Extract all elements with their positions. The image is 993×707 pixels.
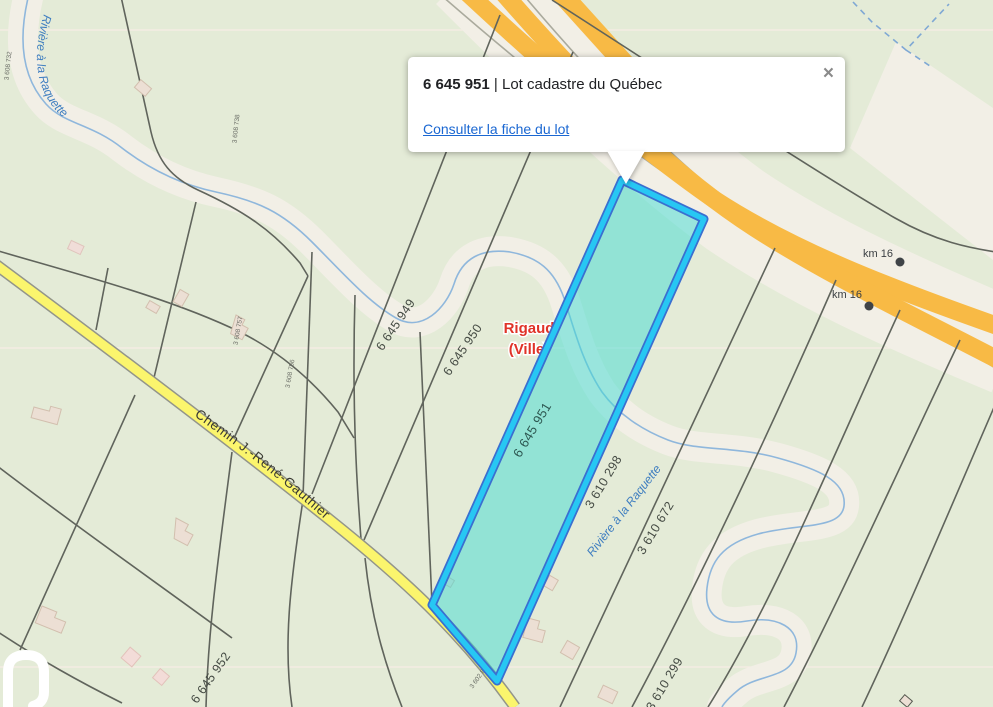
lot-info-popup: 6 645 951 | Lot cadastre du Québec Consu… [408, 57, 845, 152]
popup-title-text: Lot cadastre du Québec [502, 76, 662, 93]
popup-separator: | [494, 76, 498, 93]
map-viewer: Chemin J.-René-Gauthier Rivière à la Raq… [0, 0, 993, 707]
lot-sheet-link[interactable]: Consulter la fiche du lot [423, 121, 569, 137]
km-marker-dot [896, 258, 905, 267]
km-marker-dot [865, 302, 874, 311]
km-marker-label: km 16 [832, 289, 862, 301]
km-marker-label: km 16 [863, 248, 893, 260]
municipality-name: Rigaud [504, 320, 555, 337]
popup-title: 6 645 951 | Lot cadastre du Québec [423, 76, 662, 93]
popup-lot-id: 6 645 951 [423, 76, 490, 93]
popup-tail [607, 151, 645, 184]
close-icon[interactable]: × [823, 64, 834, 83]
